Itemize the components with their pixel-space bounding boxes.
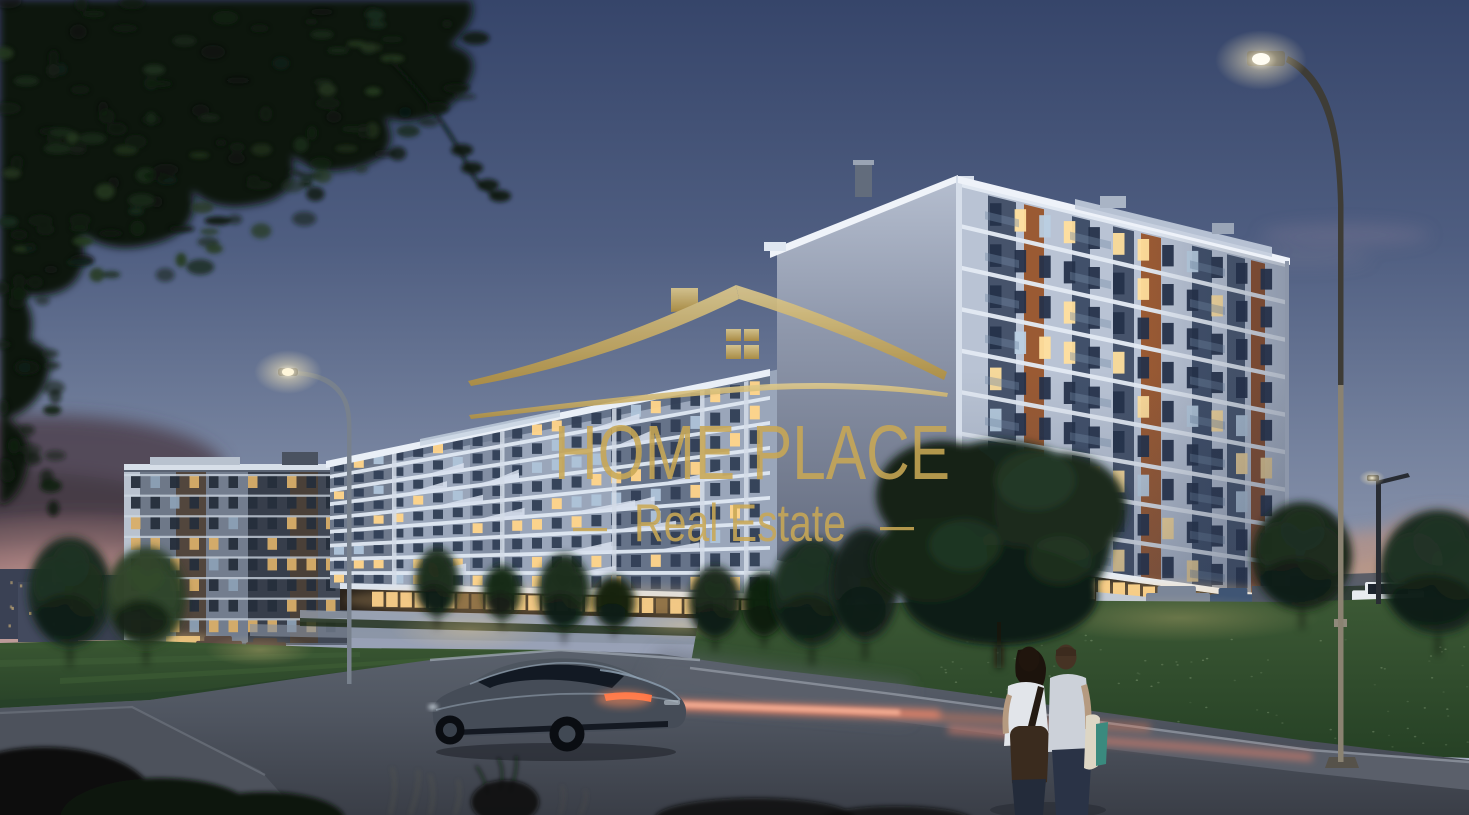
svg-text:HOME PLACE: HOME PLACE xyxy=(554,410,950,496)
svg-text:Real Estate: Real Estate xyxy=(634,494,846,553)
